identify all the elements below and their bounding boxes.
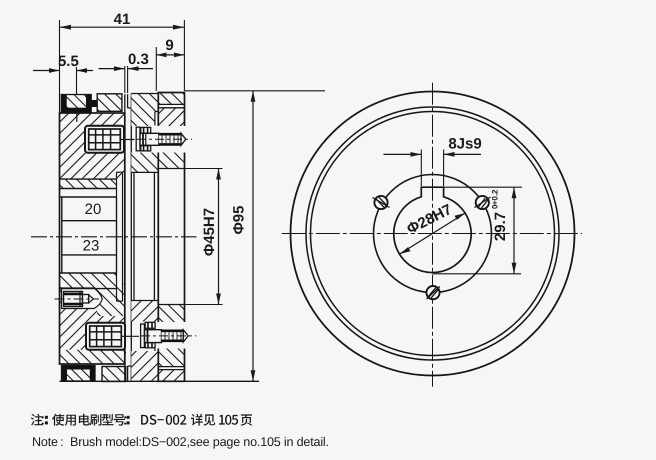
svg-text:23: 23 [83, 238, 100, 255]
svg-text:29.7: 29.7 [492, 212, 509, 241]
svg-text:0: 0 [491, 204, 500, 209]
svg-text:20: 20 [85, 201, 102, 218]
svg-text:5.5: 5.5 [58, 53, 79, 70]
svg-text:9: 9 [165, 37, 173, 54]
svg-text:Φ45H7: Φ45H7 [201, 208, 218, 256]
svg-text:Note : Brush model:DS−002,see: Note : Brush model:DS−002,see page no.10… [32, 435, 329, 449]
svg-text:+0.2: +0.2 [491, 189, 500, 205]
svg-text:41: 41 [114, 11, 131, 28]
svg-text:0.3: 0.3 [128, 51, 149, 68]
svg-text:Φ95: Φ95 [231, 206, 248, 235]
svg-text:8Js9: 8Js9 [448, 136, 481, 153]
